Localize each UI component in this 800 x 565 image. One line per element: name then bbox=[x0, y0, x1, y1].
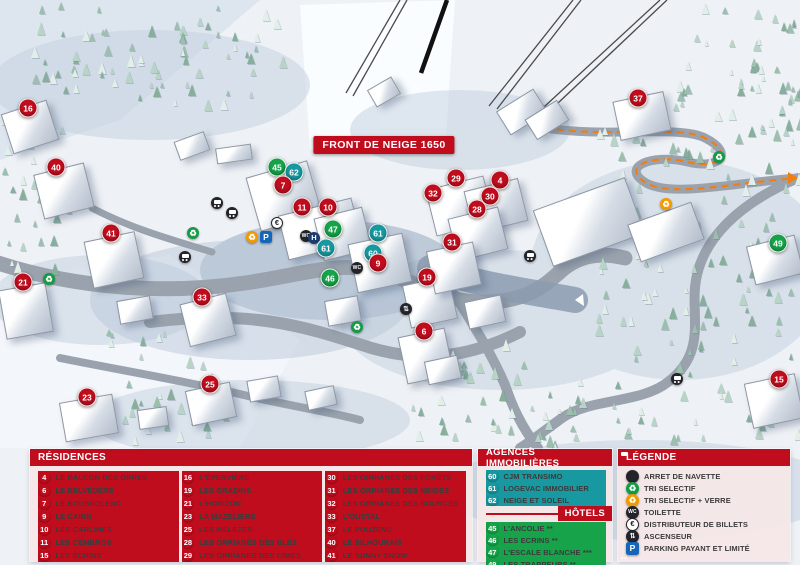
legend-item-residence: 19 LES GRADINS bbox=[182, 484, 323, 497]
marker-number: 28 bbox=[472, 204, 481, 214]
legend-item-residence: 32 LES ORRIANES DES SOURCES bbox=[325, 497, 466, 510]
hotel-number-badge: 49 bbox=[486, 558, 499, 565]
legend-item-residence: 21 L'HORIZON bbox=[182, 497, 323, 510]
residence-number-badge: 11 bbox=[38, 536, 51, 549]
residence-label: LA MAZELIÈRE bbox=[199, 512, 255, 521]
atm-euro-icon bbox=[626, 518, 639, 531]
agences-list: 60 CJM TRANSIMO 61 LOGEVAC IMMOBILIER 62… bbox=[478, 466, 612, 506]
residence-label: LES ÉCRINS bbox=[56, 551, 102, 560]
legend-item-residence: 6 LE BELVÉDÈRE bbox=[38, 484, 179, 497]
residence-label: L'HORIZON bbox=[199, 499, 241, 508]
residence-label: L'OUSTAL bbox=[343, 512, 380, 521]
marker-number: 23 bbox=[82, 392, 91, 402]
map-marker[interactable]: 46 bbox=[321, 269, 340, 288]
residence-number-badge: 7 bbox=[38, 497, 51, 510]
legend-item-residence: 10 LES CARLINES bbox=[38, 523, 179, 536]
residence-number-badge: 31 bbox=[325, 484, 338, 497]
legend-item-symbol: TRI SELECTIF bbox=[626, 482, 784, 494]
legende-header: LÉGENDE bbox=[618, 449, 790, 466]
residence-number-badge: 16 bbox=[182, 471, 195, 484]
marker-number: 6 bbox=[422, 326, 427, 336]
map-marker[interactable]: 47 bbox=[324, 220, 343, 239]
marker-number: 10 bbox=[323, 202, 332, 212]
residence-number-badge: 29 bbox=[182, 549, 195, 562]
residence-label: LE CAIRN bbox=[56, 512, 92, 521]
hotels-header-row: HÔTELS bbox=[486, 507, 612, 520]
map-marker[interactable]: 41 bbox=[102, 224, 121, 243]
map-marker[interactable]: 6 bbox=[415, 322, 434, 341]
residence-label: LE SUNNY SNOW bbox=[343, 551, 408, 560]
residence-number-badge: 4 bbox=[38, 471, 51, 484]
map-marker[interactable]: 10 bbox=[319, 198, 338, 217]
residence-number-badge: 9 bbox=[38, 510, 51, 523]
map-marker[interactable]: 61 bbox=[369, 224, 388, 243]
recycle-green-icon bbox=[626, 482, 639, 495]
residence-number-badge: 23 bbox=[182, 510, 195, 523]
hotel-number-badge: 46 bbox=[486, 534, 499, 547]
legend-item-residence: 16 L'ÉPERVIÈRE bbox=[182, 471, 323, 484]
legend-item-residence: 4 LE BALCON DES ORRES bbox=[38, 471, 179, 484]
residence-number-badge: 21 bbox=[182, 497, 195, 510]
legend-item-residence: 25 LES MÉLÈZES bbox=[182, 523, 323, 536]
legend-item-residence: 30 LES ORRIANES DES FORÊTS bbox=[325, 471, 466, 484]
recycle-orange-icon bbox=[626, 494, 639, 507]
map-marker[interactable]: 37 bbox=[629, 89, 648, 108]
legend-item-residence: 11 LES CEMBROS bbox=[38, 536, 179, 549]
marker-number: 47 bbox=[328, 224, 337, 234]
agency-label: CJM TRANSIMO bbox=[504, 472, 563, 481]
residence-label: LES CARLINES bbox=[56, 525, 112, 534]
residence-number-badge: 41 bbox=[325, 549, 338, 562]
residence-label: LES ORRIANES DES NEIGES bbox=[343, 486, 450, 495]
marker-number: 61 bbox=[321, 243, 330, 253]
legend-item-hotel: 47 L'ESCALE BLANCHE *** bbox=[486, 546, 606, 558]
map-marker[interactable]: 28 bbox=[468, 200, 487, 219]
legend-item-residence: 40 LE SILHOURAÏS bbox=[325, 536, 466, 549]
marker-number: 46 bbox=[325, 273, 334, 283]
legend-item-symbol: ARRET DE NAVETTE bbox=[626, 470, 784, 482]
marker-number: 49 bbox=[773, 238, 782, 248]
marker-number: 4 bbox=[498, 175, 503, 185]
hotel-number-badge: 47 bbox=[486, 546, 499, 559]
map-marker[interactable]: 25 bbox=[201, 375, 220, 394]
residence-label: LE BELVÉDÈRE bbox=[56, 486, 114, 495]
marker-number: 31 bbox=[447, 237, 456, 247]
marker-number: 45 bbox=[272, 162, 281, 172]
marker-number: 61 bbox=[373, 228, 382, 238]
residence-number-badge: 6 bbox=[38, 484, 51, 497]
hotels-header: HÔTELS bbox=[558, 506, 612, 521]
legend-item-residence: 28 LES ORRIANES DES BLÉS bbox=[182, 536, 323, 549]
legend-item-residence: 33 L'OUSTAL bbox=[325, 510, 466, 523]
marker-number: 37 bbox=[633, 93, 642, 103]
bus-icon bbox=[626, 470, 639, 483]
marker-number: 29 bbox=[451, 173, 460, 183]
residences-list: 4 LE BALCON DES ORRES 6 LE BELVÉDÈRE 7 L… bbox=[30, 466, 472, 563]
agency-number-badge: 60 bbox=[486, 470, 499, 483]
legend-item-residence: 15 LES ÉCRINS bbox=[38, 549, 179, 562]
residence-number-badge: 15 bbox=[38, 549, 51, 562]
parking-icon bbox=[626, 542, 639, 555]
legend-item-symbol: TOILETTE bbox=[626, 506, 784, 518]
residence-label: L'ÉPERVIÈRE bbox=[199, 473, 249, 482]
agency-label: LOGEVAC IMMOBILIER bbox=[504, 484, 589, 493]
marker-number: 9 bbox=[376, 258, 381, 268]
map-marker[interactable]: 11 bbox=[293, 198, 312, 217]
legend-item-residence: 29 LES ORRIANES DES CIMES bbox=[182, 549, 323, 562]
map-marker[interactable]: 16 bbox=[19, 99, 38, 118]
map-marker[interactable]: 32 bbox=[424, 184, 443, 203]
legend-symbol-label: ASCENSEUR bbox=[644, 532, 692, 541]
map-marker[interactable]: 61 bbox=[317, 239, 336, 258]
legend-symbol-label: TRI SELECTIF bbox=[644, 484, 696, 493]
legend-item-agency: 62 NEIGE ET SOLEIL bbox=[486, 494, 606, 506]
legend-item-residence: 9 LE CAIRN bbox=[38, 510, 179, 523]
map-marker[interactable]: 15 bbox=[770, 370, 789, 389]
legend-item-hotel: 46 LES ECRINS ** bbox=[486, 534, 606, 546]
marker-number: 21 bbox=[18, 277, 27, 287]
legend-symbol-label: DISTRIBUTEUR DE BILLETS bbox=[644, 520, 748, 529]
marker-number: 16 bbox=[23, 103, 32, 113]
residence-label: LE SILHOURAÏS bbox=[343, 538, 402, 547]
residence-number-badge: 33 bbox=[325, 510, 338, 523]
legend-item-residence: 31 LES ORRIANES DES NEIGES bbox=[325, 484, 466, 497]
hotel-label: LES ECRINS ** bbox=[504, 536, 558, 545]
legend-symbol-label: TRI SELECTIF + VERRE bbox=[644, 496, 731, 505]
legend-item-residence: 7 LE BOUSSOLENC bbox=[38, 497, 179, 510]
legend-item-symbol: ASCENSEUR bbox=[626, 530, 784, 542]
residence-number-badge: 30 bbox=[325, 471, 338, 484]
residence-number-badge: 28 bbox=[182, 536, 195, 549]
map-title-banner: FRONT DE NEIGE 1650 bbox=[313, 136, 454, 154]
residence-label: LES ORRIANES DES SOURCES bbox=[343, 499, 458, 508]
residence-label: LE POUZENC bbox=[343, 525, 392, 534]
agency-label: NEIGE ET SOLEIL bbox=[504, 496, 570, 505]
legende-list: ARRET DE NAVETTE TRI SELECTIF TRI SELECT… bbox=[618, 466, 790, 554]
residence-number-badge: 32 bbox=[325, 497, 338, 510]
residence-label: LES ORRIANES DES BLÉS bbox=[199, 538, 297, 547]
marker-number: 7 bbox=[281, 180, 286, 190]
residence-label: LES ORRIANES DES FORÊTS bbox=[343, 473, 452, 482]
residence-number-badge: 40 bbox=[325, 536, 338, 549]
marker-number: 62 bbox=[289, 167, 298, 177]
hotel-label: LES TRAPPEURS ** bbox=[504, 560, 576, 565]
marker-number: 33 bbox=[197, 292, 206, 302]
map-marker[interactable]: 29 bbox=[447, 169, 466, 188]
hotel-number-badge: 45 bbox=[486, 522, 499, 535]
legend-symbol-label: PARKING PAYANT ET LIMITÉ bbox=[644, 544, 750, 553]
residence-number-badge: 37 bbox=[325, 523, 338, 536]
legend-item-agency: 60 CJM TRANSIMO bbox=[486, 470, 606, 482]
map-marker[interactable]: 33 bbox=[193, 288, 212, 307]
marker-number: 40 bbox=[51, 162, 60, 172]
marker-number: 41 bbox=[106, 228, 115, 238]
residence-label: LE BALCON DES ORRES bbox=[56, 473, 148, 482]
legend-symbol-label: ARRET DE NAVETTE bbox=[644, 472, 720, 481]
legend-item-symbol: TRI SELECTIF + VERRE bbox=[626, 494, 784, 506]
marker-number: 19 bbox=[422, 272, 431, 282]
marker-number: 11 bbox=[298, 202, 307, 212]
hotels-rule bbox=[486, 513, 558, 515]
map-marker[interactable]: 7 bbox=[274, 176, 293, 195]
residence-label: LE BOUSSOLENC bbox=[56, 499, 122, 508]
legend-symbol-label: TOILETTE bbox=[644, 508, 681, 517]
residence-number-badge: 19 bbox=[182, 484, 195, 497]
legend-item-hotel: 49 LES TRAPPEURS ** bbox=[486, 558, 606, 565]
agency-number-badge: 61 bbox=[486, 482, 499, 495]
map-marker[interactable]: 21 bbox=[14, 273, 33, 292]
map-marker[interactable]: 9 bbox=[369, 254, 388, 273]
marker-number: 25 bbox=[205, 379, 214, 389]
hotel-label: L'ESCALE BLANCHE *** bbox=[504, 548, 592, 557]
legend-item-agency: 61 LOGEVAC IMMOBILIER bbox=[486, 482, 606, 494]
legend-item-residence: 41 LE SUNNY SNOW bbox=[325, 549, 466, 562]
map-marker[interactable]: 23 bbox=[78, 388, 97, 407]
map-marker[interactable]: 40 bbox=[47, 158, 66, 177]
legend-item-symbol: DISTRIBUTEUR DE BILLETS bbox=[626, 518, 784, 530]
agences-header: AGENCES IMMOBILIÈRES bbox=[478, 449, 612, 466]
marker-number: 30 bbox=[485, 191, 494, 201]
resort-map-page: 1640374562294732301110284741613149616091… bbox=[0, 0, 800, 565]
legend-item-hotel: 45 L'ANCOLIE ** bbox=[486, 522, 606, 534]
residence-label: LES ORRIANES DES CIMES bbox=[199, 551, 301, 560]
marker-number: 15 bbox=[774, 374, 783, 384]
residences-panel: RÉSIDENCES 4 LE BALCON DES ORRES 6 LE BE… bbox=[30, 449, 472, 561]
agences-hotels-panel: AGENCES IMMOBILIÈRES 60 CJM TRANSIMO 61 … bbox=[478, 449, 612, 561]
hotel-label: L'ANCOLIE ** bbox=[504, 524, 553, 533]
agency-number-badge: 62 bbox=[486, 494, 499, 507]
legende-panel: LÉGENDE ARRET DE NAVETTE TRI SELECTIF TR… bbox=[618, 449, 790, 561]
map-marker[interactable]: 49 bbox=[769, 234, 788, 253]
legend-item-symbol: PARKING PAYANT ET LIMITÉ bbox=[626, 542, 784, 554]
map-marker[interactable]: 31 bbox=[443, 233, 462, 252]
residence-label: LES CEMBROS bbox=[56, 538, 112, 547]
wc-icon bbox=[626, 506, 639, 519]
residences-header: RÉSIDENCES bbox=[30, 449, 472, 466]
residence-number-badge: 25 bbox=[182, 523, 195, 536]
elevator-icon bbox=[626, 530, 639, 543]
residence-label: LES MÉLÈZES bbox=[199, 525, 252, 534]
legend-item-residence: 37 LE POUZENC bbox=[325, 523, 466, 536]
residence-number-badge: 10 bbox=[38, 523, 51, 536]
legend-item-residence: 23 LA MAZELIÈRE bbox=[182, 510, 323, 523]
map-marker[interactable]: 19 bbox=[418, 268, 437, 287]
hotels-list: 45 L'ANCOLIE ** 46 LES ECRINS ** 47 L'ES… bbox=[478, 521, 612, 565]
marker-number: 32 bbox=[428, 188, 437, 198]
map-marker[interactable]: 45 bbox=[268, 158, 287, 177]
residence-label: LES GRADINS bbox=[199, 486, 251, 495]
